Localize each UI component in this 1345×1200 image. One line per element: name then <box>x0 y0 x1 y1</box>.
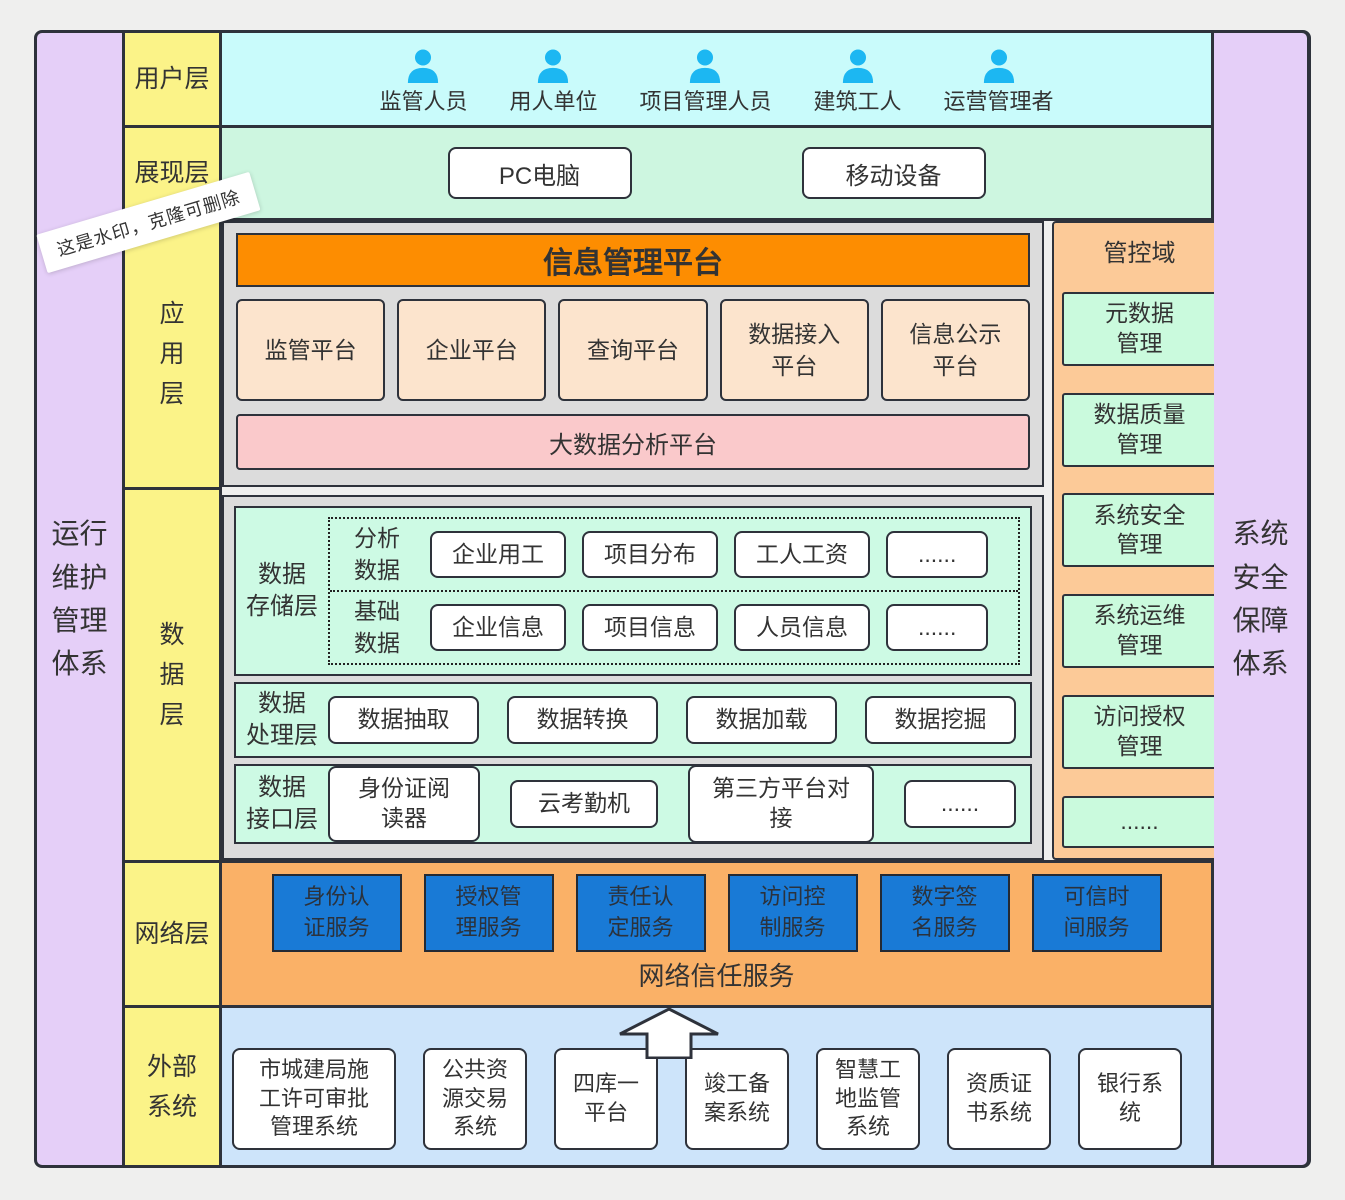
processing-box: 数据转换 <box>507 696 658 744</box>
user-role-label: 建筑工人 <box>814 84 902 116</box>
network-service-box: 责任认 定服务 <box>576 874 706 952</box>
person-icon <box>685 49 725 83</box>
interface-label: 数据 接口层 <box>236 772 328 837</box>
control-domain-box-more: ...... <box>1062 796 1217 848</box>
user-role-label: 用人单位 <box>509 84 597 116</box>
analysis-data-group: 分析 数据 企业用工 项目分布 工人工资 ...... <box>330 519 1018 592</box>
processing-label: 数据 处理层 <box>236 688 328 753</box>
external-system-box: 市城建局施 工许可审批 管理系统 <box>232 1048 396 1150</box>
bigdata-platform-bar: 大数据分析平台 <box>236 414 1030 470</box>
user-role-label: 运营管理者 <box>944 84 1054 116</box>
data-item-box-more: ...... <box>886 531 988 579</box>
control-domain-box: 系统安全 管理 <box>1062 493 1217 567</box>
user-role-label: 项目管理人员 <box>639 84 771 116</box>
main-column: 信息管理平台 监管平台 企业平台 查询平台 数据接入 平台 信息公示 平台 大数… <box>222 221 1044 860</box>
external-system-box: 银行系 统 <box>1078 1048 1182 1150</box>
network-service-box: 访问控 制服务 <box>728 874 858 952</box>
data-processing-band: 数据 处理层 数据抽取 数据转换 数据加载 数据挖掘 <box>234 682 1032 758</box>
control-domain-panel: 管控域 元数据 管理 数据质量 管理 系统安全 管理 系统运维 管理 访问授权 … <box>1052 221 1227 860</box>
base-data-boxes: 企业信息 项目信息 人员信息 ...... <box>430 604 988 652</box>
layer-label-application: 应 用 层 <box>125 221 219 487</box>
person-icon <box>979 49 1019 83</box>
user-role: 用人单位 <box>509 49 597 116</box>
person-icon <box>838 49 878 83</box>
processing-box: 数据抽取 <box>328 696 479 744</box>
up-arrow-icon <box>617 1007 721 1059</box>
person-icon <box>533 49 573 83</box>
data-item-box-more: ...... <box>886 604 988 652</box>
interface-box: 第三方平台对接 <box>688 765 874 843</box>
external-system-box: 竣工备 案系统 <box>685 1048 789 1150</box>
storage-dotted-container: 分析 数据 企业用工 项目分布 工人工资 ...... 基础 数据 企 <box>328 517 1020 665</box>
interface-box: 身份证阅 读器 <box>328 766 480 842</box>
network-service-box: 数字签 名服务 <box>880 874 1010 952</box>
platform-box: 监管平台 <box>236 299 385 401</box>
interface-box-more: ...... <box>904 780 1016 828</box>
layer-label-user: 用户层 <box>125 33 219 125</box>
layer-label-network: 网络层 <box>125 863 219 1005</box>
external-system-box: 公共资 源交易 系统 <box>423 1048 527 1150</box>
control-domain-box: 系统运维 管理 <box>1062 594 1217 668</box>
storage-label: 数据 存储层 <box>236 508 328 674</box>
network-service-box: 身份认 证服务 <box>272 874 402 952</box>
interface-box: 云考勤机 <box>510 780 658 828</box>
application-data-region: 信息管理平台 监管平台 企业平台 查询平台 数据接入 平台 信息公示 平台 大数… <box>222 221 1211 860</box>
person-icon <box>403 49 443 83</box>
network-service-box: 可信时 间服务 <box>1032 874 1162 952</box>
network-layer-band: 身份认 证服务 授权管 理服务 责任认 定服务 访问控 制服务 数字签 名服务 … <box>222 863 1211 1005</box>
external-systems-row: 市城建局施 工许可审批 管理系统 公共资 源交易 系统 四库一 平台 竣工备 案… <box>222 1048 1211 1150</box>
user-role: 运营管理者 <box>944 49 1054 116</box>
base-data-label: 基础 数据 <box>342 596 412 658</box>
platform-row: 监管平台 企业平台 查询平台 数据接入 平台 信息公示 平台 <box>236 299 1030 401</box>
control-domain-box: 数据质量 管理 <box>1062 393 1217 467</box>
user-role: 建筑工人 <box>814 49 902 116</box>
platform-box: 数据接入 平台 <box>720 299 869 401</box>
data-item-box: 项目分布 <box>582 531 718 579</box>
analysis-data-label: 分析 数据 <box>342 523 412 585</box>
control-domain-box: 元数据 管理 <box>1062 292 1217 366</box>
network-service-box: 授权管 理服务 <box>424 874 554 952</box>
external-system-box: 智慧工 地监管 系统 <box>816 1048 920 1150</box>
external-system-box: 资质证 书系统 <box>947 1048 1051 1150</box>
data-item-box: 工人工资 <box>734 531 870 579</box>
data-storage-band: 数据 存储层 分析 数据 企业用工 项目分布 工人工资 ...... <box>234 506 1032 676</box>
interface-boxes: 身份证阅 读器 云考勤机 第三方平台对接 ...... <box>328 765 1030 843</box>
trust-service-label: 网络信任服务 <box>222 956 1211 993</box>
data-item-box: 企业信息 <box>430 604 566 652</box>
processing-box: 数据挖掘 <box>865 696 1016 744</box>
device-pc: PC电脑 <box>448 147 632 199</box>
platform-box: 企业平台 <box>397 299 546 401</box>
right-sidebar-label: 系统 安全 保障 体系 <box>1232 512 1288 686</box>
processing-boxes: 数据抽取 数据转换 数据加载 数据挖掘 <box>328 696 1030 744</box>
left-sidebar-label: 运行 维护 管理 体系 <box>51 512 107 686</box>
data-interface-band: 数据 接口层 身份证阅 读器 云考勤机 第三方平台对接 ...... <box>234 764 1032 844</box>
layer-label-external: 外部 系统 <box>125 1008 219 1165</box>
right-sidebar: 系统 安全 保障 体系 <box>1214 33 1307 1165</box>
data-item-box: 企业用工 <box>430 531 566 579</box>
external-system-box: 四库一 平台 <box>554 1048 658 1150</box>
device-mobile: 移动设备 <box>802 147 986 199</box>
platform-box: 查询平台 <box>558 299 707 401</box>
base-data-group: 基础 数据 企业信息 项目信息 人员信息 ...... <box>330 592 1018 663</box>
user-layer-band: 监管人员 用人单位 项目管理人员 建筑工人 运营管理者 <box>222 33 1211 125</box>
data-item-box: 项目信息 <box>582 604 718 652</box>
user-role: 项目管理人员 <box>639 49 771 116</box>
platform-box: 信息公示 平台 <box>881 299 1030 401</box>
presentation-layer-band: PC电脑 移动设备 <box>222 128 1211 218</box>
network-services-row: 身份认 证服务 授权管 理服务 责任认 定服务 访问控 制服务 数字签 名服务 … <box>222 874 1211 952</box>
user-role-label: 监管人员 <box>379 84 467 116</box>
application-layer-container: 信息管理平台 监管平台 企业平台 查询平台 数据接入 平台 信息公示 平台 大数… <box>222 221 1044 487</box>
analysis-data-boxes: 企业用工 项目分布 工人工资 ...... <box>430 531 988 579</box>
processing-box: 数据加载 <box>686 696 837 744</box>
left-sidebar: 运行 维护 管理 体系 <box>37 33 122 1165</box>
control-domain-title: 管控域 <box>1062 233 1217 265</box>
data-layer-container: 数据 存储层 分析 数据 企业用工 项目分布 工人工资 ...... <box>222 495 1044 860</box>
info-platform-header: 信息管理平台 <box>236 233 1030 287</box>
external-systems-band: 市城建局施 工许可审批 管理系统 公共资 源交易 系统 四库一 平台 竣工备 案… <box>222 1008 1211 1165</box>
user-role: 监管人员 <box>379 49 467 116</box>
layer-label-data: 数 据 层 <box>125 490 219 860</box>
data-item-box: 人员信息 <box>734 604 870 652</box>
control-domain-box: 访问授权 管理 <box>1062 695 1217 769</box>
